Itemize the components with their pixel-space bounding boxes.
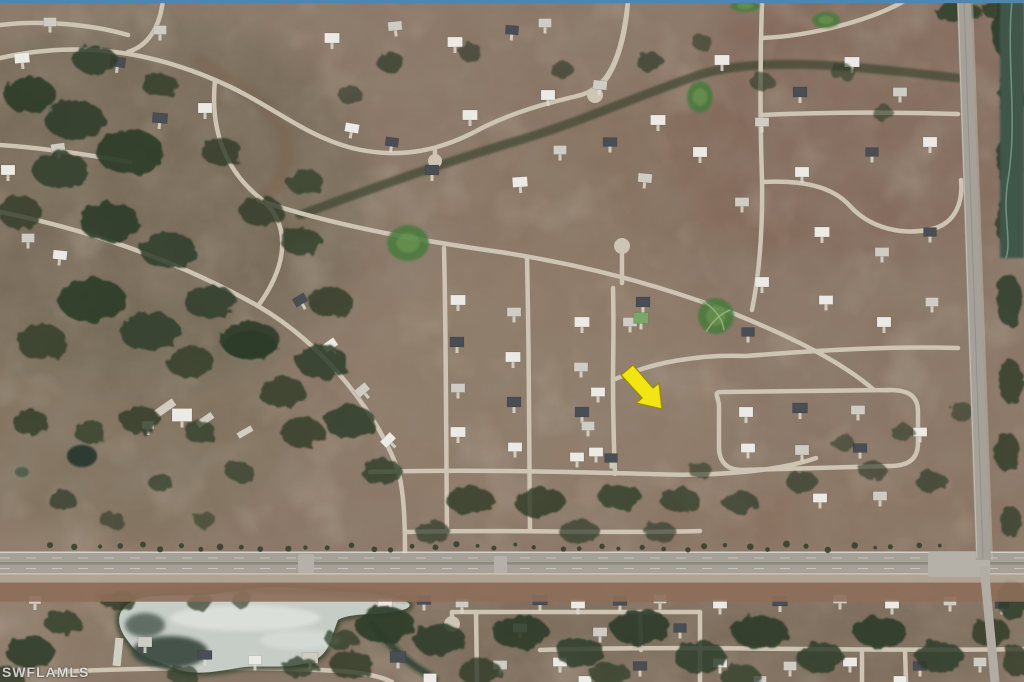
satellite-scene	[0, 0, 1024, 682]
aerial-photo: SWFLAMLS	[0, 0, 1024, 682]
watermark: SWFLAMLS	[2, 664, 89, 680]
top-edge-strip	[0, 0, 1024, 3]
canal-layer	[1000, 0, 1024, 258]
